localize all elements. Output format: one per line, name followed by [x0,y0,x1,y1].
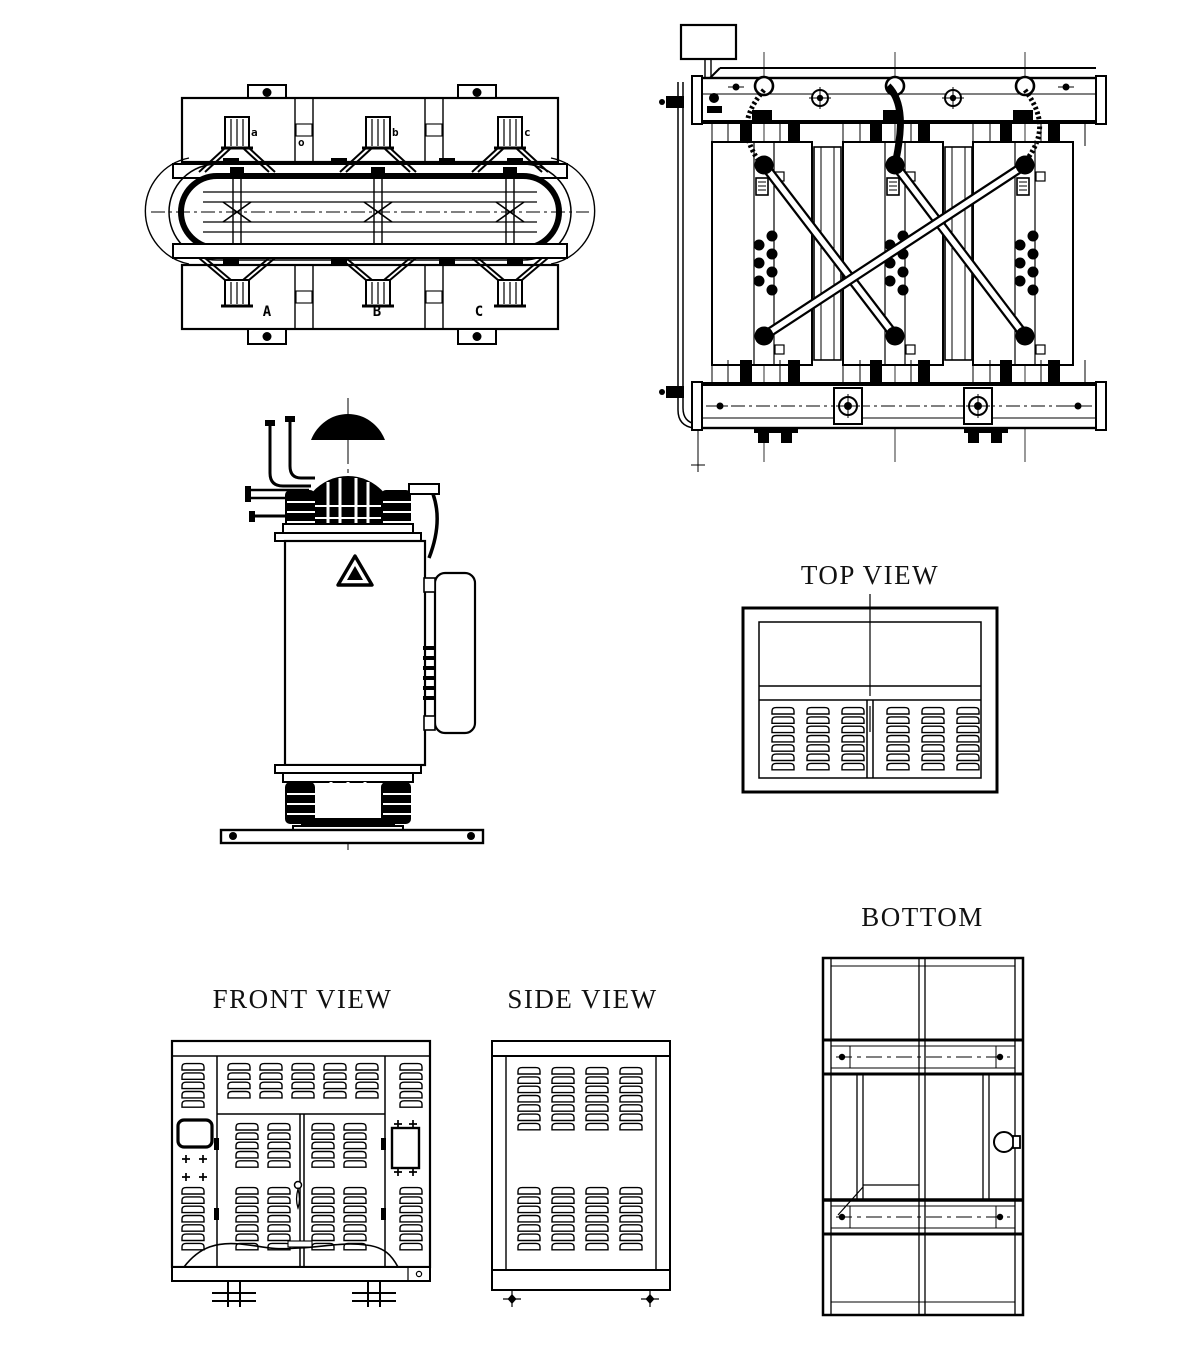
top-view-title: TOP VIEW [740,560,1000,591]
front-base-rail [172,1267,430,1281]
terminal-label-a: a [251,126,258,139]
neutral-label-o: o [298,136,305,149]
roller [964,388,992,424]
phase-label-A: A [263,304,272,320]
enclosure-top-outline [743,594,997,792]
base-feet [754,428,1008,443]
lower-clamp-bars [275,765,421,782]
roller [834,388,862,424]
enclosure-front-view [170,1038,435,1328]
core-assembly-side-view [213,398,498,853]
bottom-outline [823,958,1023,1315]
earthing-cable-left [659,82,696,428]
terminal-box [392,1120,419,1176]
bottom-view-title-text: BOTTOM [861,902,984,932]
terminal-label-b: b [392,126,399,139]
door-latch [288,1241,312,1247]
lifting-lugs-bottom [248,329,496,344]
bottom-view-title: BOTTOM [820,902,1025,933]
core-assembly-plan-view: a b c o A B C [155,60,585,360]
enclosure-bottom-view [820,952,1025,1317]
tie-rods-and-core-marks [223,167,524,255]
enclosure-top-view [740,604,1000,796]
side-base-rail [492,1270,670,1307]
top-view-title-text: TOP VIEW [801,560,939,590]
engineering-drawing-sheet: a b c o A B C [0,0,1200,1361]
lower-clamp-beam [692,382,1106,430]
front-view-title: FRONT VIEW [170,984,435,1015]
datum-line-bottom [691,430,705,472]
terminal-label-c: c [524,126,531,139]
phase-label-C: C [475,304,483,320]
upper-clamp-bars [275,524,421,541]
phase-label-B: B [373,304,381,320]
side-view-title: SIDE VIEW [490,984,675,1015]
front-view-title-text: FRONT VIEW [213,984,393,1014]
side-radiator [424,573,475,733]
front-feet [212,1281,396,1307]
base-plate [221,826,483,843]
enclosure-side-view [490,1038,675,1306]
side-view-title-text: SIDE VIEW [507,984,657,1014]
core-assembly-elevation-view [648,10,1108,475]
lower-flange-band [173,244,567,264]
